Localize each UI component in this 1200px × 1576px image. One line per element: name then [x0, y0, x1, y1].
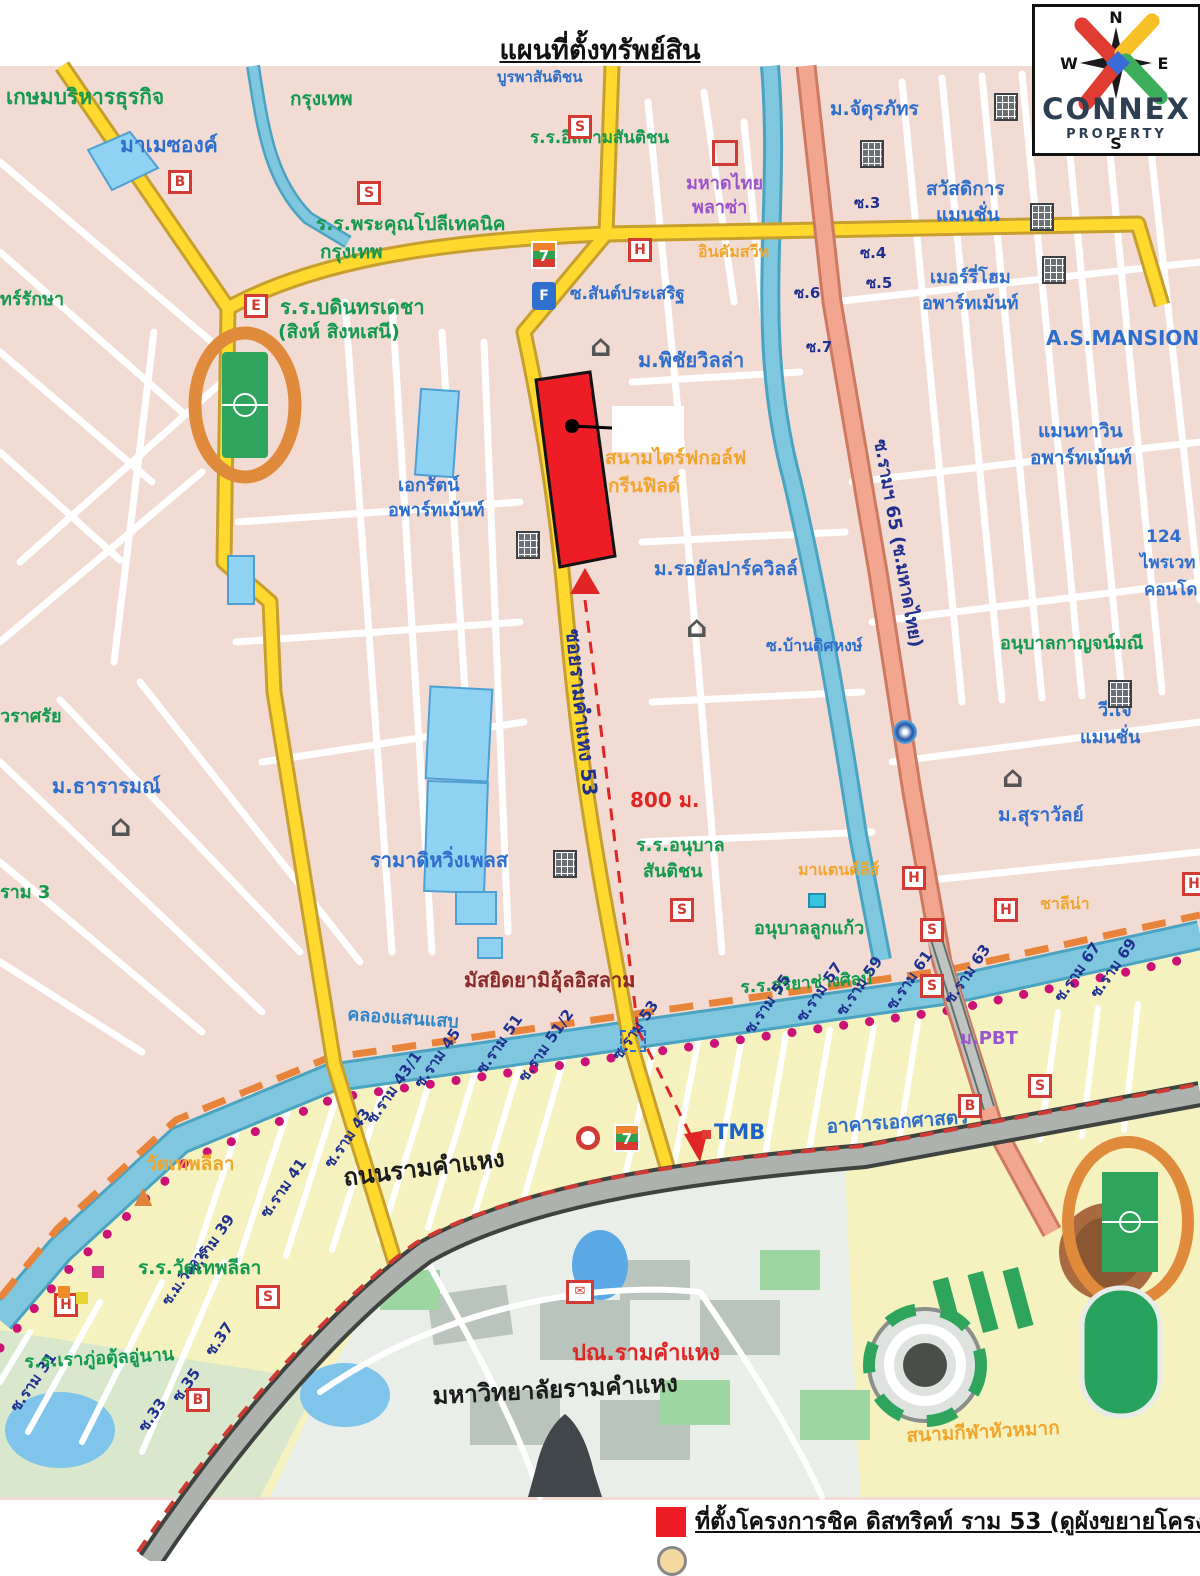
- legend-row: ที่ตั้งโครงการชิค ดิสทริคท์ ราม 53 (ดูผั…: [656, 1504, 1200, 1540]
- compass-west: W: [1060, 54, 1078, 73]
- legend-text: ที่ตั้งโครงการชิค ดิสทริคท์ ราม 53 (ดูผั…: [695, 1504, 1200, 1540]
- compass-east: E: [1158, 54, 1169, 73]
- callout-dot: [565, 419, 579, 433]
- logo-subtitle: PROPERTY: [1035, 127, 1198, 142]
- legend-marker-swatch: [656, 1507, 686, 1537]
- map-canvas: เกษมบริหารธุรกิจกรุงเทพมาเมซองค์บูรพาสัน…: [0, 0, 1200, 1561]
- callout-box: [612, 406, 684, 452]
- compass-north: N: [1109, 8, 1122, 27]
- logo-name: CONNEX: [1035, 95, 1198, 124]
- connex-logo: N W E S CONNEX PROPERTY: [1032, 4, 1200, 156]
- legend-partial-circle: [657, 1546, 687, 1576]
- map-base-graphics: [0, 0, 1200, 1561]
